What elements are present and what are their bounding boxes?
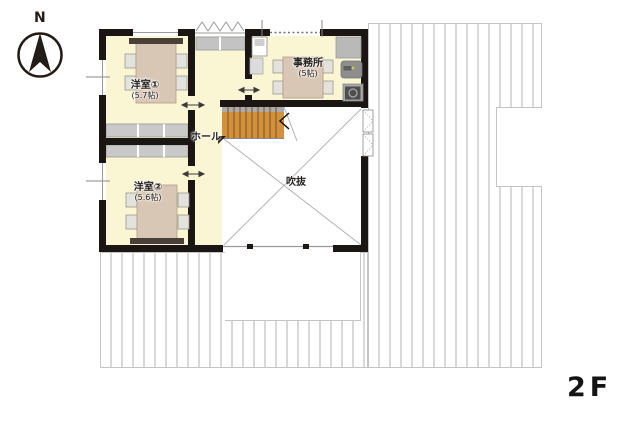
closet-western1 <box>106 124 188 137</box>
floorplan-drawing <box>0 0 640 427</box>
floorplan-2f-page: N 洋室① (5.7帖) 洋室② (5.6帖) 事務所 (5帖) ホール 吹抜 … <box>0 0 640 427</box>
closet-western2 <box>106 145 188 157</box>
floor-indicator: 2F <box>567 372 612 403</box>
compass-north-label: N <box>34 10 46 26</box>
compass-north-icon <box>19 33 62 77</box>
